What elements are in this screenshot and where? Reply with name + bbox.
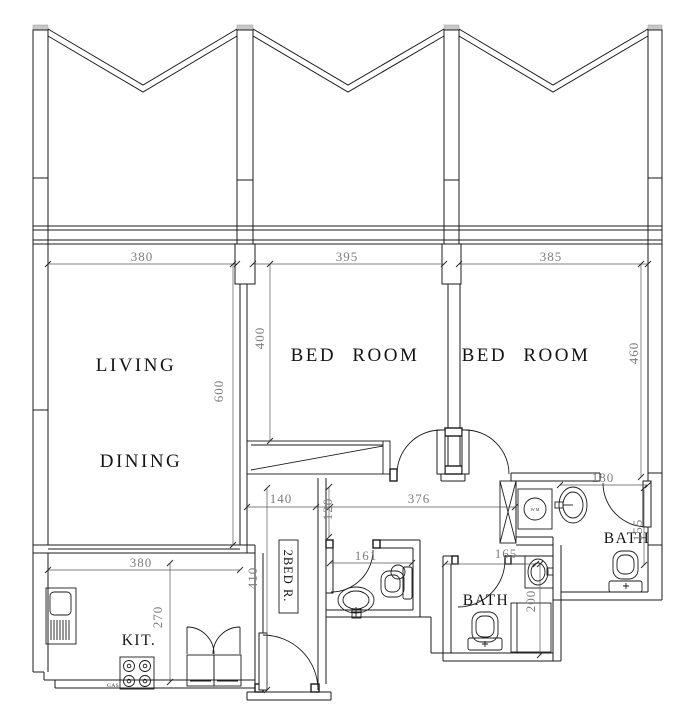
balcony-pillar-cap	[444, 25, 459, 30]
label-bedroom1: BED ROOM	[291, 345, 420, 366]
stove-burners	[124, 661, 151, 687]
floor-plan: LIVING DINING BED ROOM BED ROOM KIT. BAT…	[0, 0, 684, 722]
balcony-pillar	[444, 30, 459, 226]
dim-corridor-depth: 410	[245, 567, 260, 590]
dim-living-width: 380	[131, 249, 154, 264]
dim-hall-c: 376	[408, 491, 431, 506]
structural-column	[442, 244, 461, 284]
door-swing-bedroom2	[465, 430, 509, 474]
dim-hall-b: 120	[320, 498, 335, 521]
furniture	[46, 441, 390, 689]
kitchen-double-door	[187, 627, 240, 654]
label-washing-machine: W.M	[531, 507, 540, 512]
door-jamb	[445, 466, 462, 474]
dim-wc-width: 161	[355, 548, 378, 563]
label-bedroom2: BED ROOM	[462, 345, 591, 366]
kitchen-sink-drainer	[51, 620, 69, 640]
balcony-pillar	[237, 30, 253, 226]
toilet-wc-bowl	[385, 575, 400, 592]
floor-plan-drawing: LIVING DINING BED ROOM BED ROOM KIT. BAT…	[0, 0, 684, 722]
balcony-pillar-cap	[237, 25, 253, 30]
basin-bath2-counter	[525, 556, 553, 588]
balcony-pillar	[648, 30, 662, 226]
dim-bath1-depth: 155	[630, 519, 645, 542]
basin-wc-bowl	[343, 591, 369, 609]
label-dining: DINING	[100, 451, 183, 472]
outer-wall-left	[33, 244, 55, 688]
living-bedroom1-wall	[240, 284, 247, 545]
door-leaf-bedroom2	[462, 430, 469, 474]
door-jamb	[373, 540, 380, 548]
balcony-pillar-cap	[33, 25, 48, 30]
toilet-bath1-bowl	[617, 555, 634, 574]
top-window-band	[33, 226, 662, 244]
dimension-ticks	[45, 261, 651, 693]
door-jamb	[390, 469, 397, 481]
balcony-pillar-cap	[648, 25, 662, 30]
toilet-bath2-bowl	[476, 616, 494, 637]
label-kitchen: KIT.	[122, 632, 157, 649]
door-leaf-bedroom1	[437, 430, 445, 474]
bedroom-partition-wall	[448, 284, 460, 473]
dim-kitchen-width: 380	[130, 555, 153, 570]
dimension-lines	[45, 261, 651, 693]
label-unit-type: 2BED R.	[281, 550, 295, 603]
balcony	[33, 25, 662, 226]
door-jamb	[452, 556, 458, 564]
dim-bedroom2-width: 385	[540, 249, 563, 264]
dim-living-depth: 600	[211, 380, 226, 403]
structural-column	[235, 244, 255, 284]
balcony-pillar-joints	[33, 178, 662, 180]
door-jamb	[326, 540, 333, 548]
label-living: LIVING	[96, 355, 176, 376]
balcony-parapet-sawtooth	[48, 29, 648, 92]
dim-bath2-depth: 200	[523, 590, 538, 613]
dim-kitchen-depth: 270	[150, 606, 165, 629]
bedroom-bottom-wall	[390, 473, 600, 481]
dim-bedroom1-width: 395	[336, 249, 359, 264]
dim-bedroom1-depth: 400	[252, 327, 267, 350]
toilet-bath1-base	[609, 581, 642, 592]
balcony-pillar	[33, 30, 48, 226]
door-swing-entry	[263, 635, 318, 690]
dim-bath2-width: 165	[495, 546, 518, 561]
dim-hall-a: 140	[270, 491, 293, 506]
door-swing-bedroom1	[397, 430, 441, 474]
label-bath2: BATH	[463, 592, 509, 609]
dim-bedroom2-depth: 460	[626, 342, 641, 365]
duct-shaft-cross	[500, 481, 516, 543]
kitchen-top-wall	[33, 545, 255, 553]
labels: LIVING DINING BED ROOM BED ROOM KIT. BAT…	[96, 249, 650, 689]
dim-bath1-width: 180	[592, 470, 615, 485]
door-leaf-wc	[326, 548, 333, 593]
label-gas-stove: GAS	[107, 683, 119, 689]
door-jamb	[445, 428, 462, 436]
doors	[187, 428, 651, 692]
toilet-bath1-mark	[623, 583, 629, 589]
door-leaf-entry	[259, 633, 267, 690]
kitchen-sink-basin	[50, 592, 71, 615]
dimension-line-set	[48, 264, 648, 690]
kitchen-sink-counter	[46, 588, 76, 644]
wardrobe-detail	[251, 441, 383, 474]
